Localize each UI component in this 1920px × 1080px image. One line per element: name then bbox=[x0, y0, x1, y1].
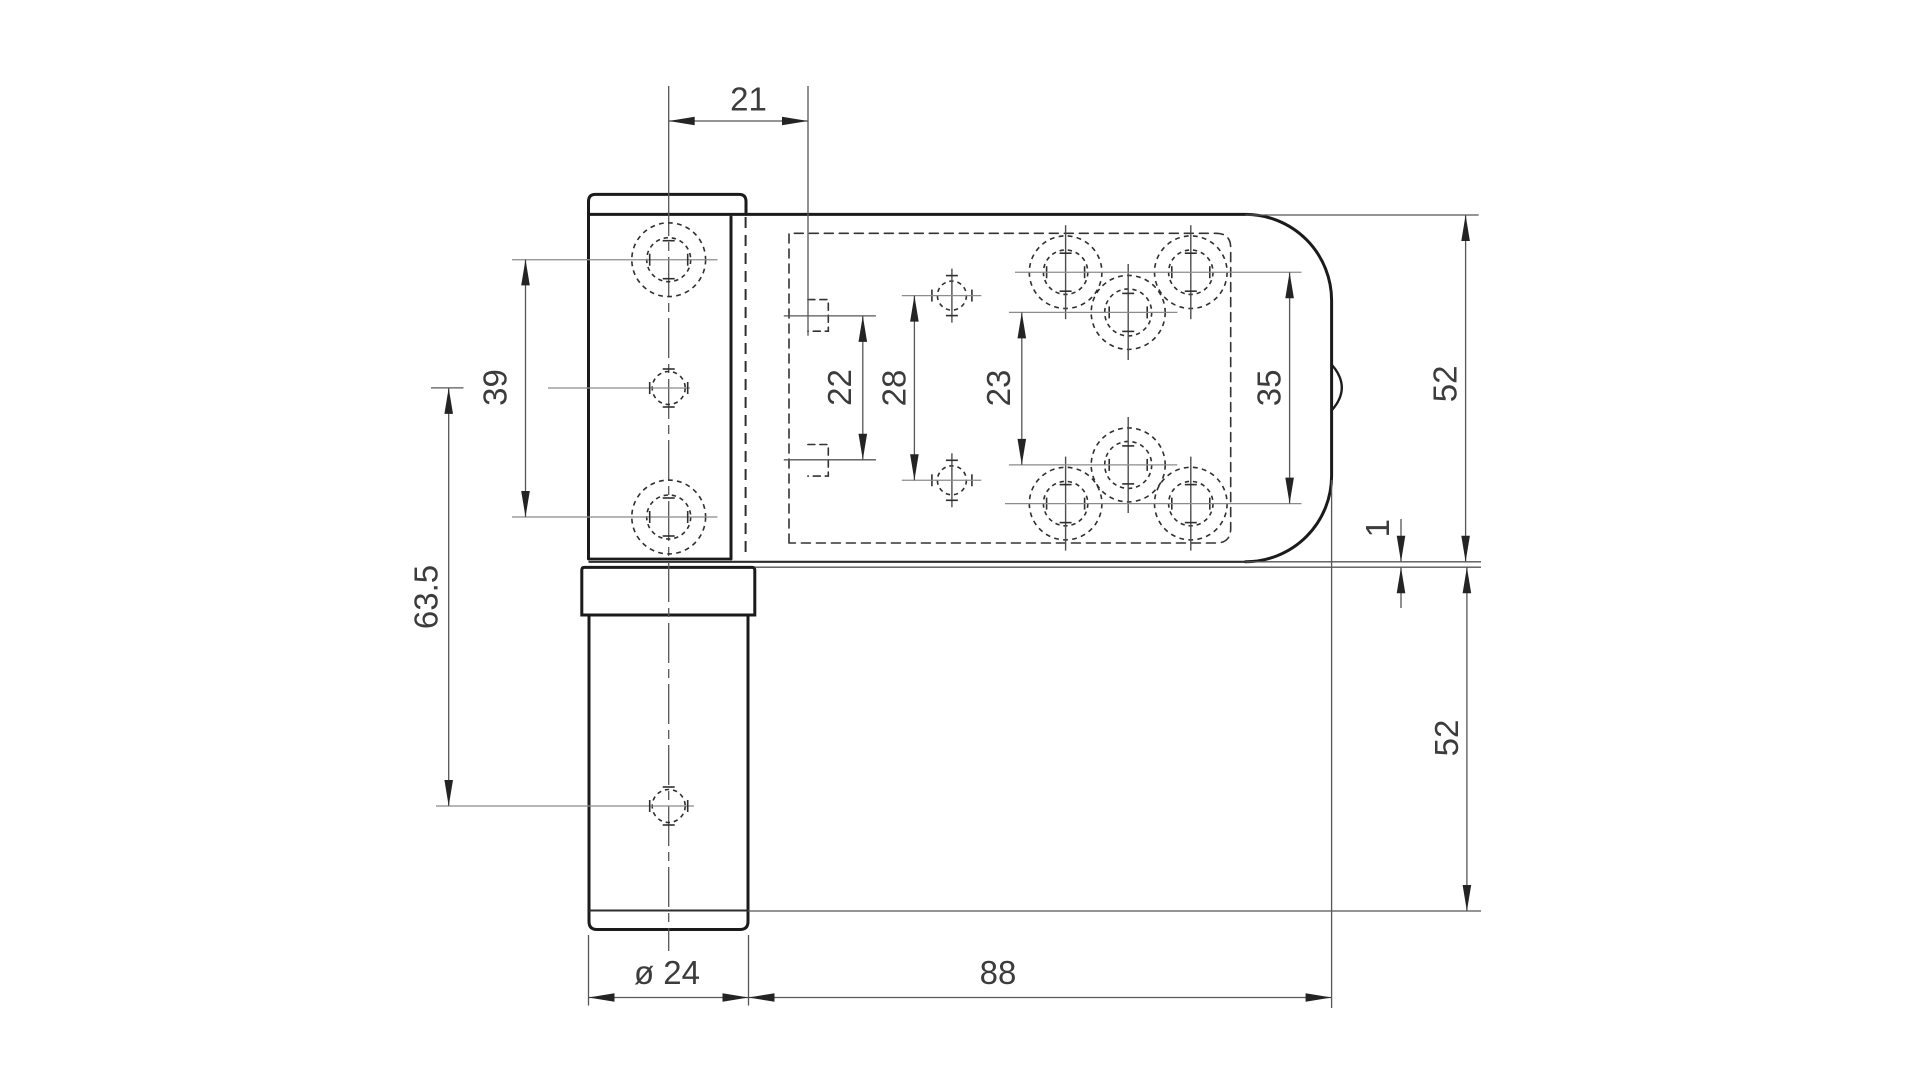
svg-text:21: 21 bbox=[730, 81, 767, 118]
svg-text:ø 24: ø 24 bbox=[634, 954, 700, 991]
svg-text:52: 52 bbox=[1427, 366, 1464, 403]
svg-text:35: 35 bbox=[1251, 370, 1288, 407]
svg-text:28: 28 bbox=[875, 370, 912, 407]
svg-text:63.5: 63.5 bbox=[408, 565, 445, 629]
svg-text:88: 88 bbox=[980, 954, 1017, 991]
svg-text:39: 39 bbox=[477, 369, 514, 406]
svg-text:52: 52 bbox=[1428, 720, 1465, 757]
svg-text:23: 23 bbox=[980, 370, 1017, 407]
svg-text:1: 1 bbox=[1359, 519, 1396, 537]
svg-text:22: 22 bbox=[821, 369, 858, 406]
